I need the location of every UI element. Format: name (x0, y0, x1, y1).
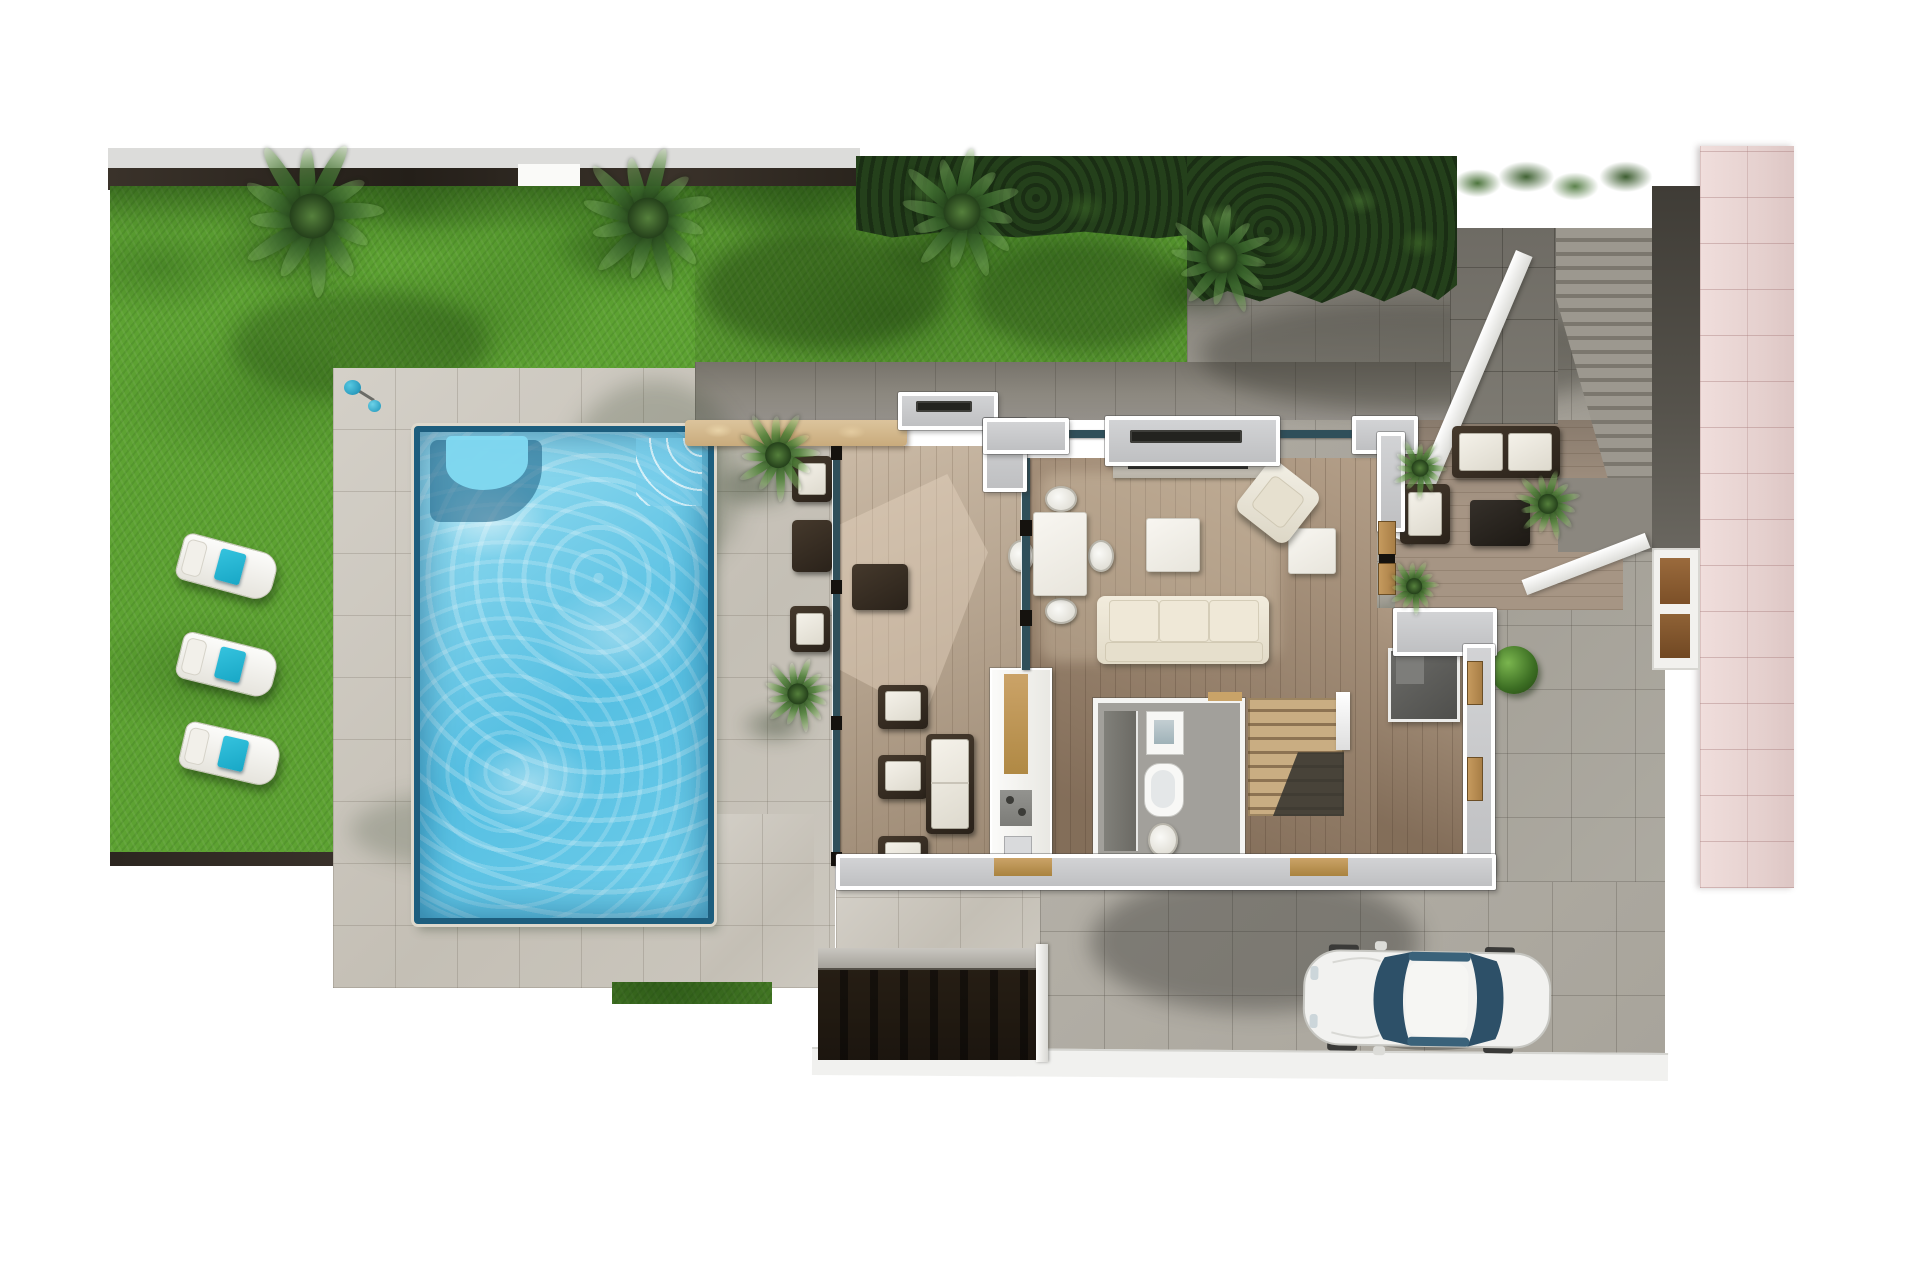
vine-greens (1452, 148, 1664, 212)
lounger-towel (217, 735, 250, 772)
car (1297, 936, 1557, 1062)
lounger-towel (214, 646, 247, 683)
floor-plan-render (0, 0, 1920, 1280)
hedge-top-right (1187, 156, 1457, 306)
lounger-headrest (180, 637, 208, 677)
sun-lounger (174, 630, 281, 700)
lounger-headrest (183, 727, 211, 767)
sun-lounger (177, 720, 283, 789)
lounger-towel (213, 548, 246, 586)
sun-lounger (173, 531, 280, 603)
lounger-headrest (180, 538, 209, 578)
